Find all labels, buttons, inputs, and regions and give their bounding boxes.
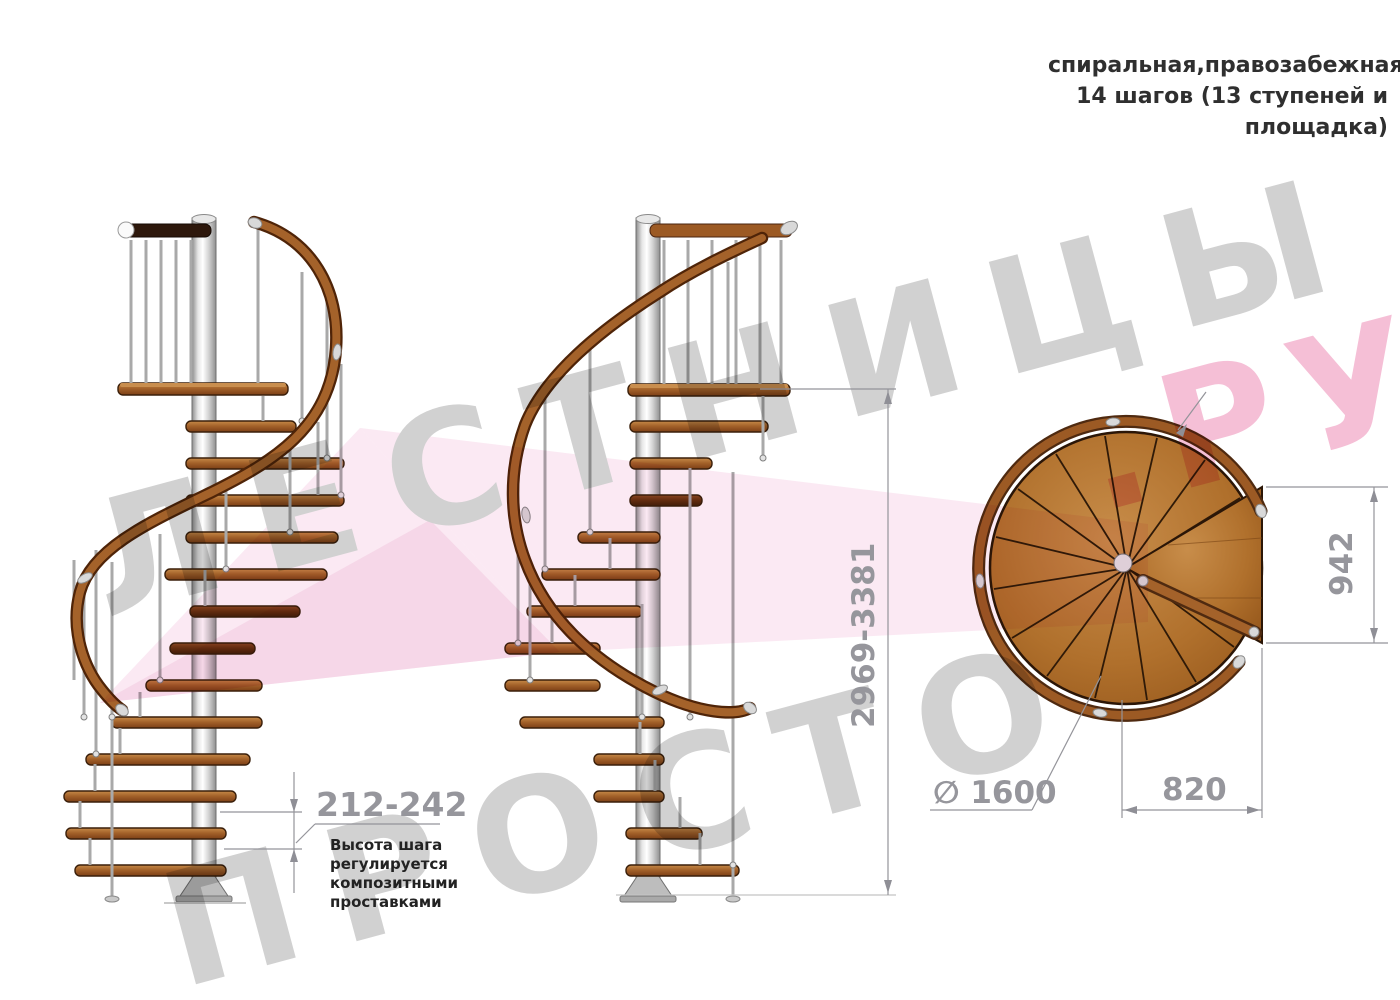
entry-handrail-cap: [1249, 627, 1259, 637]
rail-end-ball: [118, 222, 134, 238]
drawing-title: спиральная,правозабежная 14 шагов (13 ст…: [1048, 50, 1388, 143]
dimension-total-height-label: 2969-3381: [846, 543, 882, 728]
column-top-cap: [192, 215, 216, 224]
drawing-title-line3: площадка): [1048, 112, 1388, 143]
dimension-entry-width-label: 820: [1162, 772, 1227, 808]
drawing-title-line1: спиральная,правозабежная: [1048, 50, 1388, 81]
dimension-diameter-label: ∅ 1600: [933, 775, 1057, 811]
platform-rail: [650, 224, 792, 237]
column-top-cap: [636, 215, 660, 224]
step-height-note: Высота шага регулируется композитными пр…: [330, 836, 460, 912]
dimension-platform-depth-label: 942: [1324, 531, 1360, 596]
dimension-step-height-label: 212-242: [316, 785, 467, 824]
staircase-drawing: ЛЕСТНИЦЫ ПРОСТО .РУ 212-242 2: [0, 0, 1400, 1000]
drawing-canvas: ЛЕСТНИЦЫ ПРОСТО .РУ 212-242 2: [0, 0, 1400, 1000]
drawing-title-line2: 14 шагов (13 ступеней и: [1048, 81, 1388, 112]
